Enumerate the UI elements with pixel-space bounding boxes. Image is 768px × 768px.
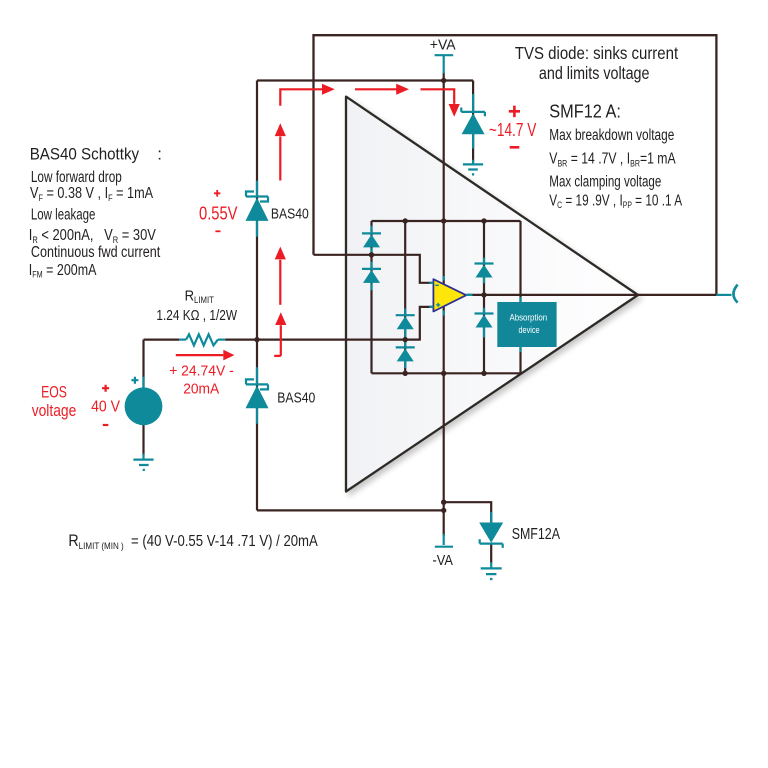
svg-text:EOS: EOS (41, 382, 67, 401)
svg-text:Max breakdown voltage: Max breakdown voltage (549, 127, 674, 144)
svg-text:1.24 KΩ , 1/2W: 1.24 KΩ , 1/2W (156, 307, 237, 324)
svg-text:device: device (519, 325, 540, 335)
svg-text:and limits voltage: and limits voltage (539, 63, 650, 83)
svg-text:RLIMIT: RLIMIT (185, 288, 215, 306)
svg-text:Max clamping voltage: Max clamping voltage (549, 174, 661, 191)
svg-text:+ 24.74V -: + 24.74V - (169, 363, 234, 380)
svg-text:BAS40 Schottky: BAS40 Schottky (30, 145, 140, 164)
svg-text:Low forward drop: Low forward drop (31, 169, 122, 186)
svg-text:VF = 0.38 V , IF = 1mA: VF = 0.38 V , IF = 1mA (30, 185, 154, 203)
svg-text:0.55V: 0.55V (199, 204, 238, 224)
svg-text:+VA: +VA (430, 38, 456, 54)
svg-text:SMF12A: SMF12A (512, 526, 561, 543)
svg-text:Low leakage: Low leakage (31, 207, 96, 224)
svg-text:BAS40: BAS40 (277, 390, 315, 406)
svg-text:Continuous fwd current: Continuous fwd current (31, 244, 161, 261)
svg-text:-VA: -VA (433, 553, 454, 569)
svg-text:TVS diode: sinks current: TVS diode: sinks current (515, 43, 678, 63)
svg-text:Absorption: Absorption (510, 312, 548, 322)
svg-text:VC = 19 .9V , IPP = 10 .1 A: VC = 19 .9V , IPP = 10 .1 A (549, 192, 682, 210)
svg-text:RLIMIT (MIN ) = (40 V-0.55 V-: RLIMIT (MIN ) = (40 V-0.55 V-14 .71 V) /… (68, 531, 318, 552)
svg-text:SMF12 A:: SMF12 A: (549, 101, 621, 121)
svg-text:~14.7 V: ~14.7 V (489, 120, 536, 140)
svg-text:BAS40: BAS40 (271, 207, 309, 223)
svg-text:VBR = 14 .7V , IBR=1 mA: VBR = 14 .7V , IBR=1 mA (549, 151, 676, 169)
svg-text:voltage: voltage (32, 401, 77, 420)
svg-text::: : (157, 145, 162, 164)
svg-text:20mA: 20mA (183, 382, 219, 398)
svg-text:IFM = 200mA: IFM = 200mA (29, 262, 97, 280)
svg-text:IR < 200nA, VR = 30V: IR < 200nA, VR = 30V (29, 227, 157, 245)
svg-text:40 V: 40 V (91, 398, 120, 415)
